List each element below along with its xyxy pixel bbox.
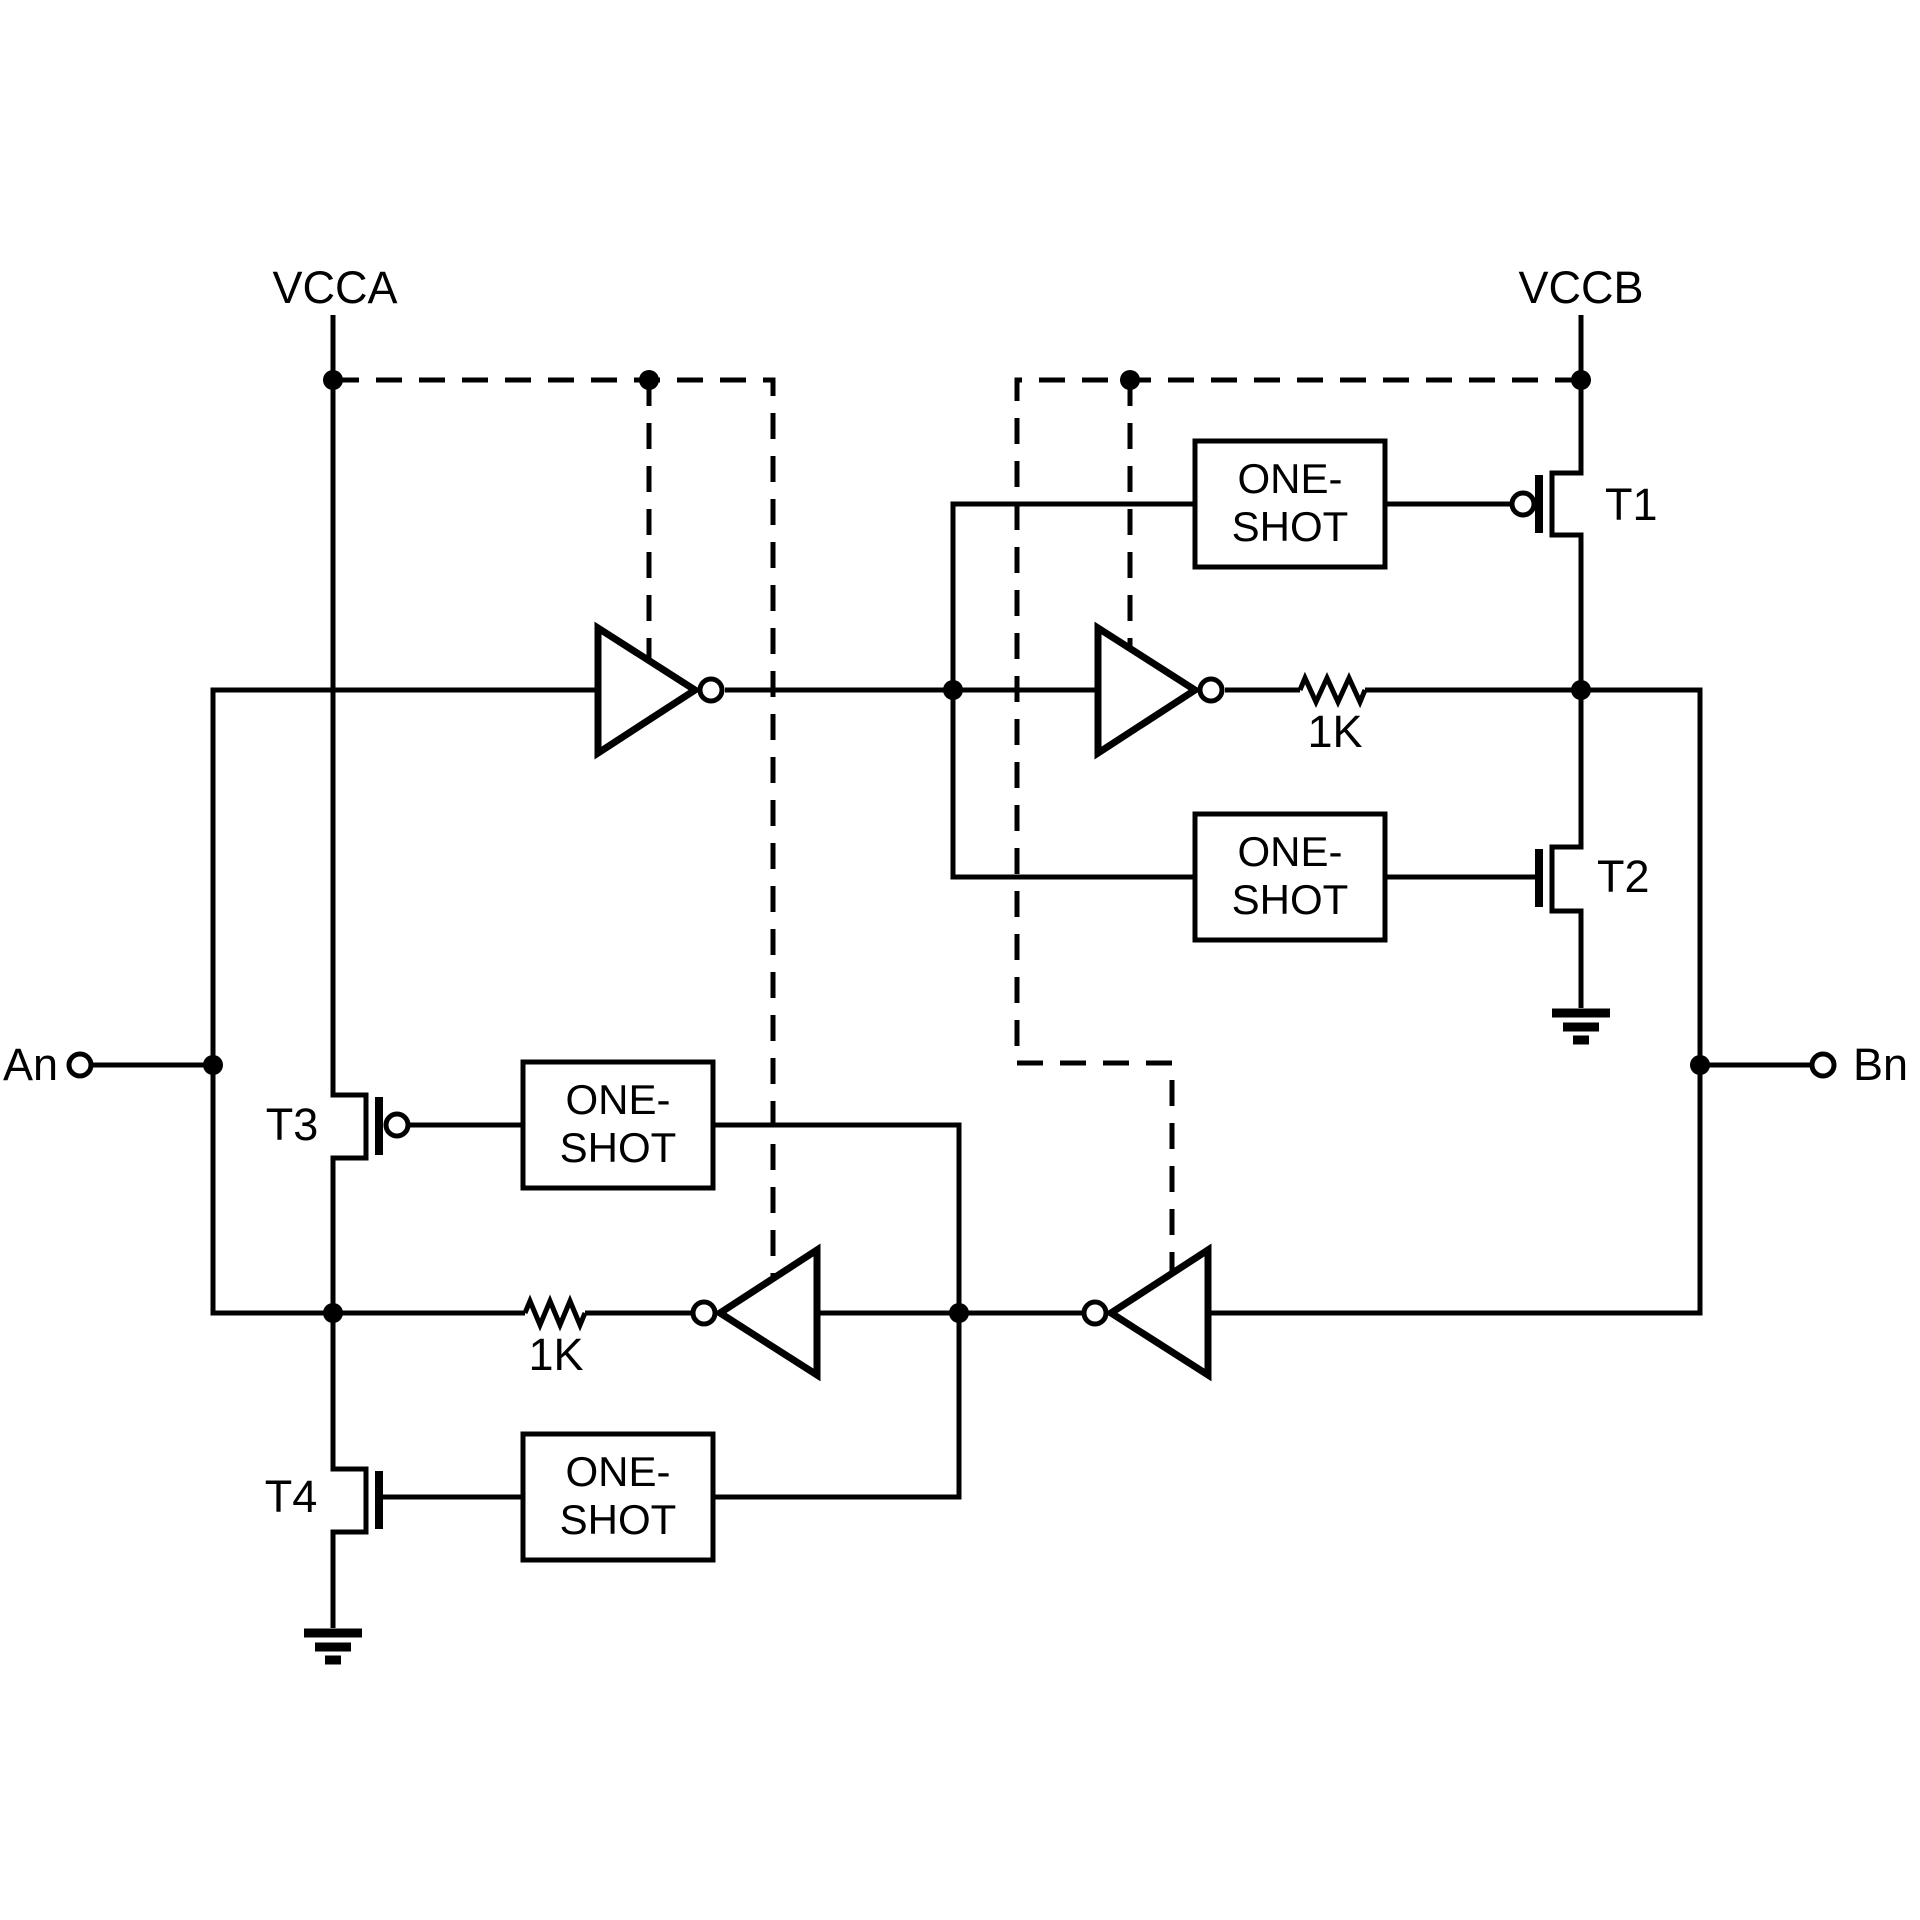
junction-dot — [639, 370, 659, 390]
t4-label: T4 — [265, 1471, 318, 1522]
vccb-label: VCCB — [1518, 262, 1643, 313]
junction-dot — [203, 1055, 223, 1075]
resistor-top-1k: 1K — [1300, 678, 1365, 757]
t1-label: T1 — [1605, 479, 1658, 530]
junction-dot — [943, 680, 963, 700]
junction-dot — [1571, 370, 1591, 390]
t1-gate-bubble — [1512, 493, 1534, 515]
inverter-bubble — [700, 679, 722, 701]
inverter-bubble — [1084, 1302, 1106, 1324]
oneshot-text-line2: SHOT — [560, 1124, 677, 1171]
oneshot-text-line2: SHOT — [1232, 503, 1349, 550]
schematic-level-translator: VCCA VCCB — [0, 0, 1920, 1920]
an-label: An — [3, 1039, 58, 1090]
oneshot-t3: ONE- SHOT — [523, 1062, 713, 1188]
oneshot-t1: ONE- SHOT — [1195, 441, 1385, 567]
oneshot-text-line1: ONE- — [566, 1076, 671, 1123]
junction-dot — [949, 1303, 969, 1323]
junction-dot — [1690, 1055, 1710, 1075]
junction-dot — [323, 1303, 343, 1323]
oneshot-t2: ONE- SHOT — [1195, 814, 1385, 940]
oneshot-text-line1: ONE- — [1238, 455, 1343, 502]
oneshot-text-line2: SHOT — [1232, 876, 1349, 923]
inverter-bubble — [1200, 679, 1222, 701]
bn-terminal-circle — [1812, 1054, 1834, 1076]
vcca-label: VCCA — [272, 262, 397, 313]
junction-dot — [323, 370, 343, 390]
oneshot-text-line1: ONE- — [566, 1448, 671, 1495]
junction-dot — [1120, 370, 1140, 390]
resistor-bottom-1k: 1K — [525, 1301, 585, 1380]
oneshot-text-line1: ONE- — [1238, 828, 1343, 875]
oneshot-t4: ONE- SHOT — [523, 1434, 713, 1560]
t2-label: T2 — [1597, 851, 1650, 902]
bn-label: Bn — [1853, 1039, 1908, 1090]
t3-label: T3 — [266, 1099, 319, 1150]
an-terminal-circle — [69, 1054, 91, 1076]
resistor-top-label: 1K — [1307, 706, 1362, 757]
inverter-bubble — [693, 1302, 715, 1324]
t3-gate-bubble — [386, 1114, 408, 1136]
resistor-bottom-label: 1K — [528, 1329, 583, 1380]
oneshot-text-line2: SHOT — [560, 1496, 677, 1543]
